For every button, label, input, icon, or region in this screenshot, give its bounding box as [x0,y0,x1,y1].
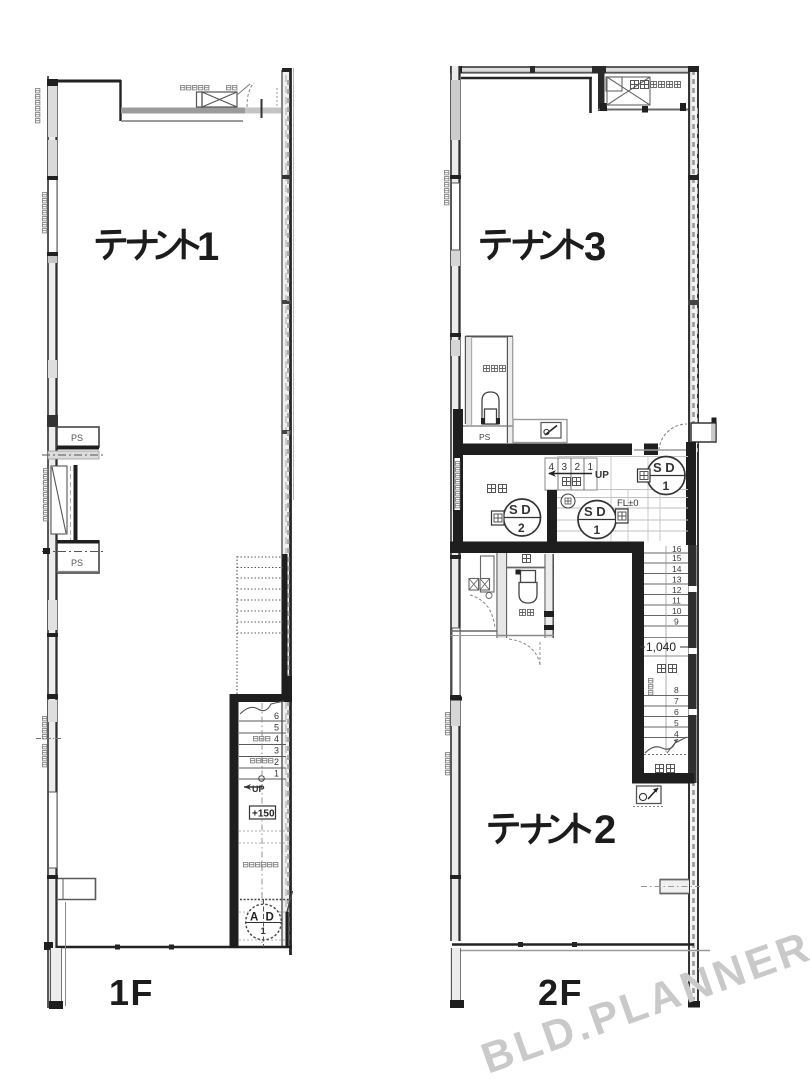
svg-text:PS: PS [479,432,491,442]
svg-text:3: 3 [562,462,568,473]
svg-text:PS: PS [71,558,83,568]
svg-text:5: 5 [274,723,279,733]
svg-text:1: 1 [261,926,267,937]
svg-text:13: 13 [672,575,682,585]
svg-text:3: 3 [274,746,279,756]
svg-text:A: A [250,912,258,924]
svg-text:S D: S D [509,502,531,517]
svg-text:2: 2 [575,462,581,473]
svg-text:1: 1 [663,479,670,493]
svg-text:14: 14 [672,564,682,574]
svg-text:1: 1 [594,523,601,537]
svg-text:UP: UP [595,470,609,481]
svg-text:1: 1 [588,462,594,473]
svg-text:6: 6 [674,707,679,717]
svg-text:8: 8 [674,685,679,695]
svg-text:10: 10 [672,606,682,616]
svg-text:15: 15 [672,553,682,563]
svg-text:9: 9 [674,617,679,627]
svg-text:1,040: 1,040 [646,640,676,654]
svg-text:D: D [266,912,274,924]
svg-text:4: 4 [274,734,279,744]
svg-text:UP: UP [252,784,265,794]
svg-text:7: 7 [674,696,679,706]
svg-text:6: 6 [274,711,279,721]
svg-text:2: 2 [594,808,616,852]
svg-text:12: 12 [672,585,682,595]
svg-text:1: 1 [274,769,279,779]
svg-text:1F: 1F [109,972,154,1013]
svg-text:S D: S D [584,504,606,519]
svg-text:PS: PS [71,433,83,443]
svg-text:1: 1 [197,225,219,269]
svg-text:S D: S D [653,460,675,475]
svg-text:+150: +150 [252,809,275,820]
svg-text:3: 3 [584,225,606,269]
svg-text:FL±0: FL±0 [617,498,639,509]
svg-text:11: 11 [672,596,681,606]
svg-text:2: 2 [274,757,279,767]
svg-text:2: 2 [518,521,525,535]
